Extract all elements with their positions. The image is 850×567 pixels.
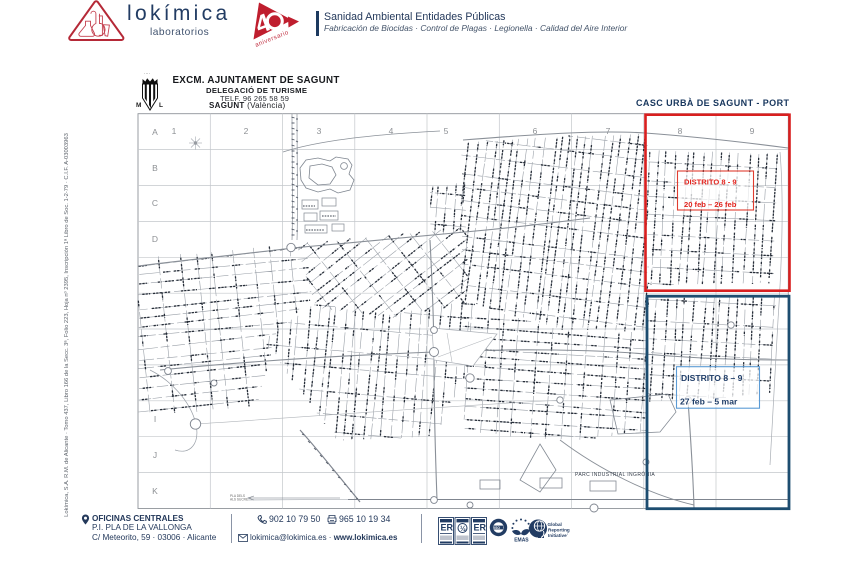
svg-text:ISO: ISO — [494, 526, 500, 530]
svg-text:PLA DELSALS SUCRE: PLA DELSALS SUCRE — [230, 494, 248, 501]
svg-text:½: ½ — [460, 525, 466, 533]
svg-text:D: D — [152, 234, 158, 244]
svg-text:9: 9 — [750, 126, 755, 136]
svg-text:A: A — [152, 127, 158, 137]
svg-text:27 feb – 5 mar: 27 feb – 5 mar — [680, 397, 738, 407]
svg-text:C: C — [152, 198, 158, 208]
svg-text:J: J — [153, 450, 157, 460]
svg-text:PARC INDUSTRIAL INGRÒNIA: PARC INDUSTRIAL INGRÒNIA — [575, 471, 655, 478]
svg-text:Global: Global — [548, 522, 562, 527]
svg-text:DISTRITO 8 - 9: DISTRITO 8 - 9 — [684, 178, 737, 187]
svg-text:Reporting: Reporting — [548, 527, 570, 532]
svg-text:2: 2 — [244, 126, 249, 136]
svg-text:I: I — [154, 414, 156, 424]
svg-text:5: 5 — [444, 126, 449, 136]
svg-text:ER: ER — [441, 523, 454, 533]
svg-text:8: 8 — [678, 126, 683, 136]
svg-text:Initiative´: Initiative´ — [548, 533, 569, 538]
svg-text:K: K — [152, 486, 158, 496]
svg-text:B: B — [152, 163, 158, 173]
svg-text:DISTRITO 8 – 9: DISTRITO 8 – 9 — [681, 373, 743, 383]
svg-text:20 feb – 26 feb: 20 feb – 26 feb — [684, 200, 737, 209]
svg-text:1: 1 — [172, 126, 177, 136]
svg-text:7: 7 — [606, 126, 611, 136]
svg-text:3: 3 — [317, 126, 322, 136]
svg-text:ER: ER — [474, 523, 487, 533]
